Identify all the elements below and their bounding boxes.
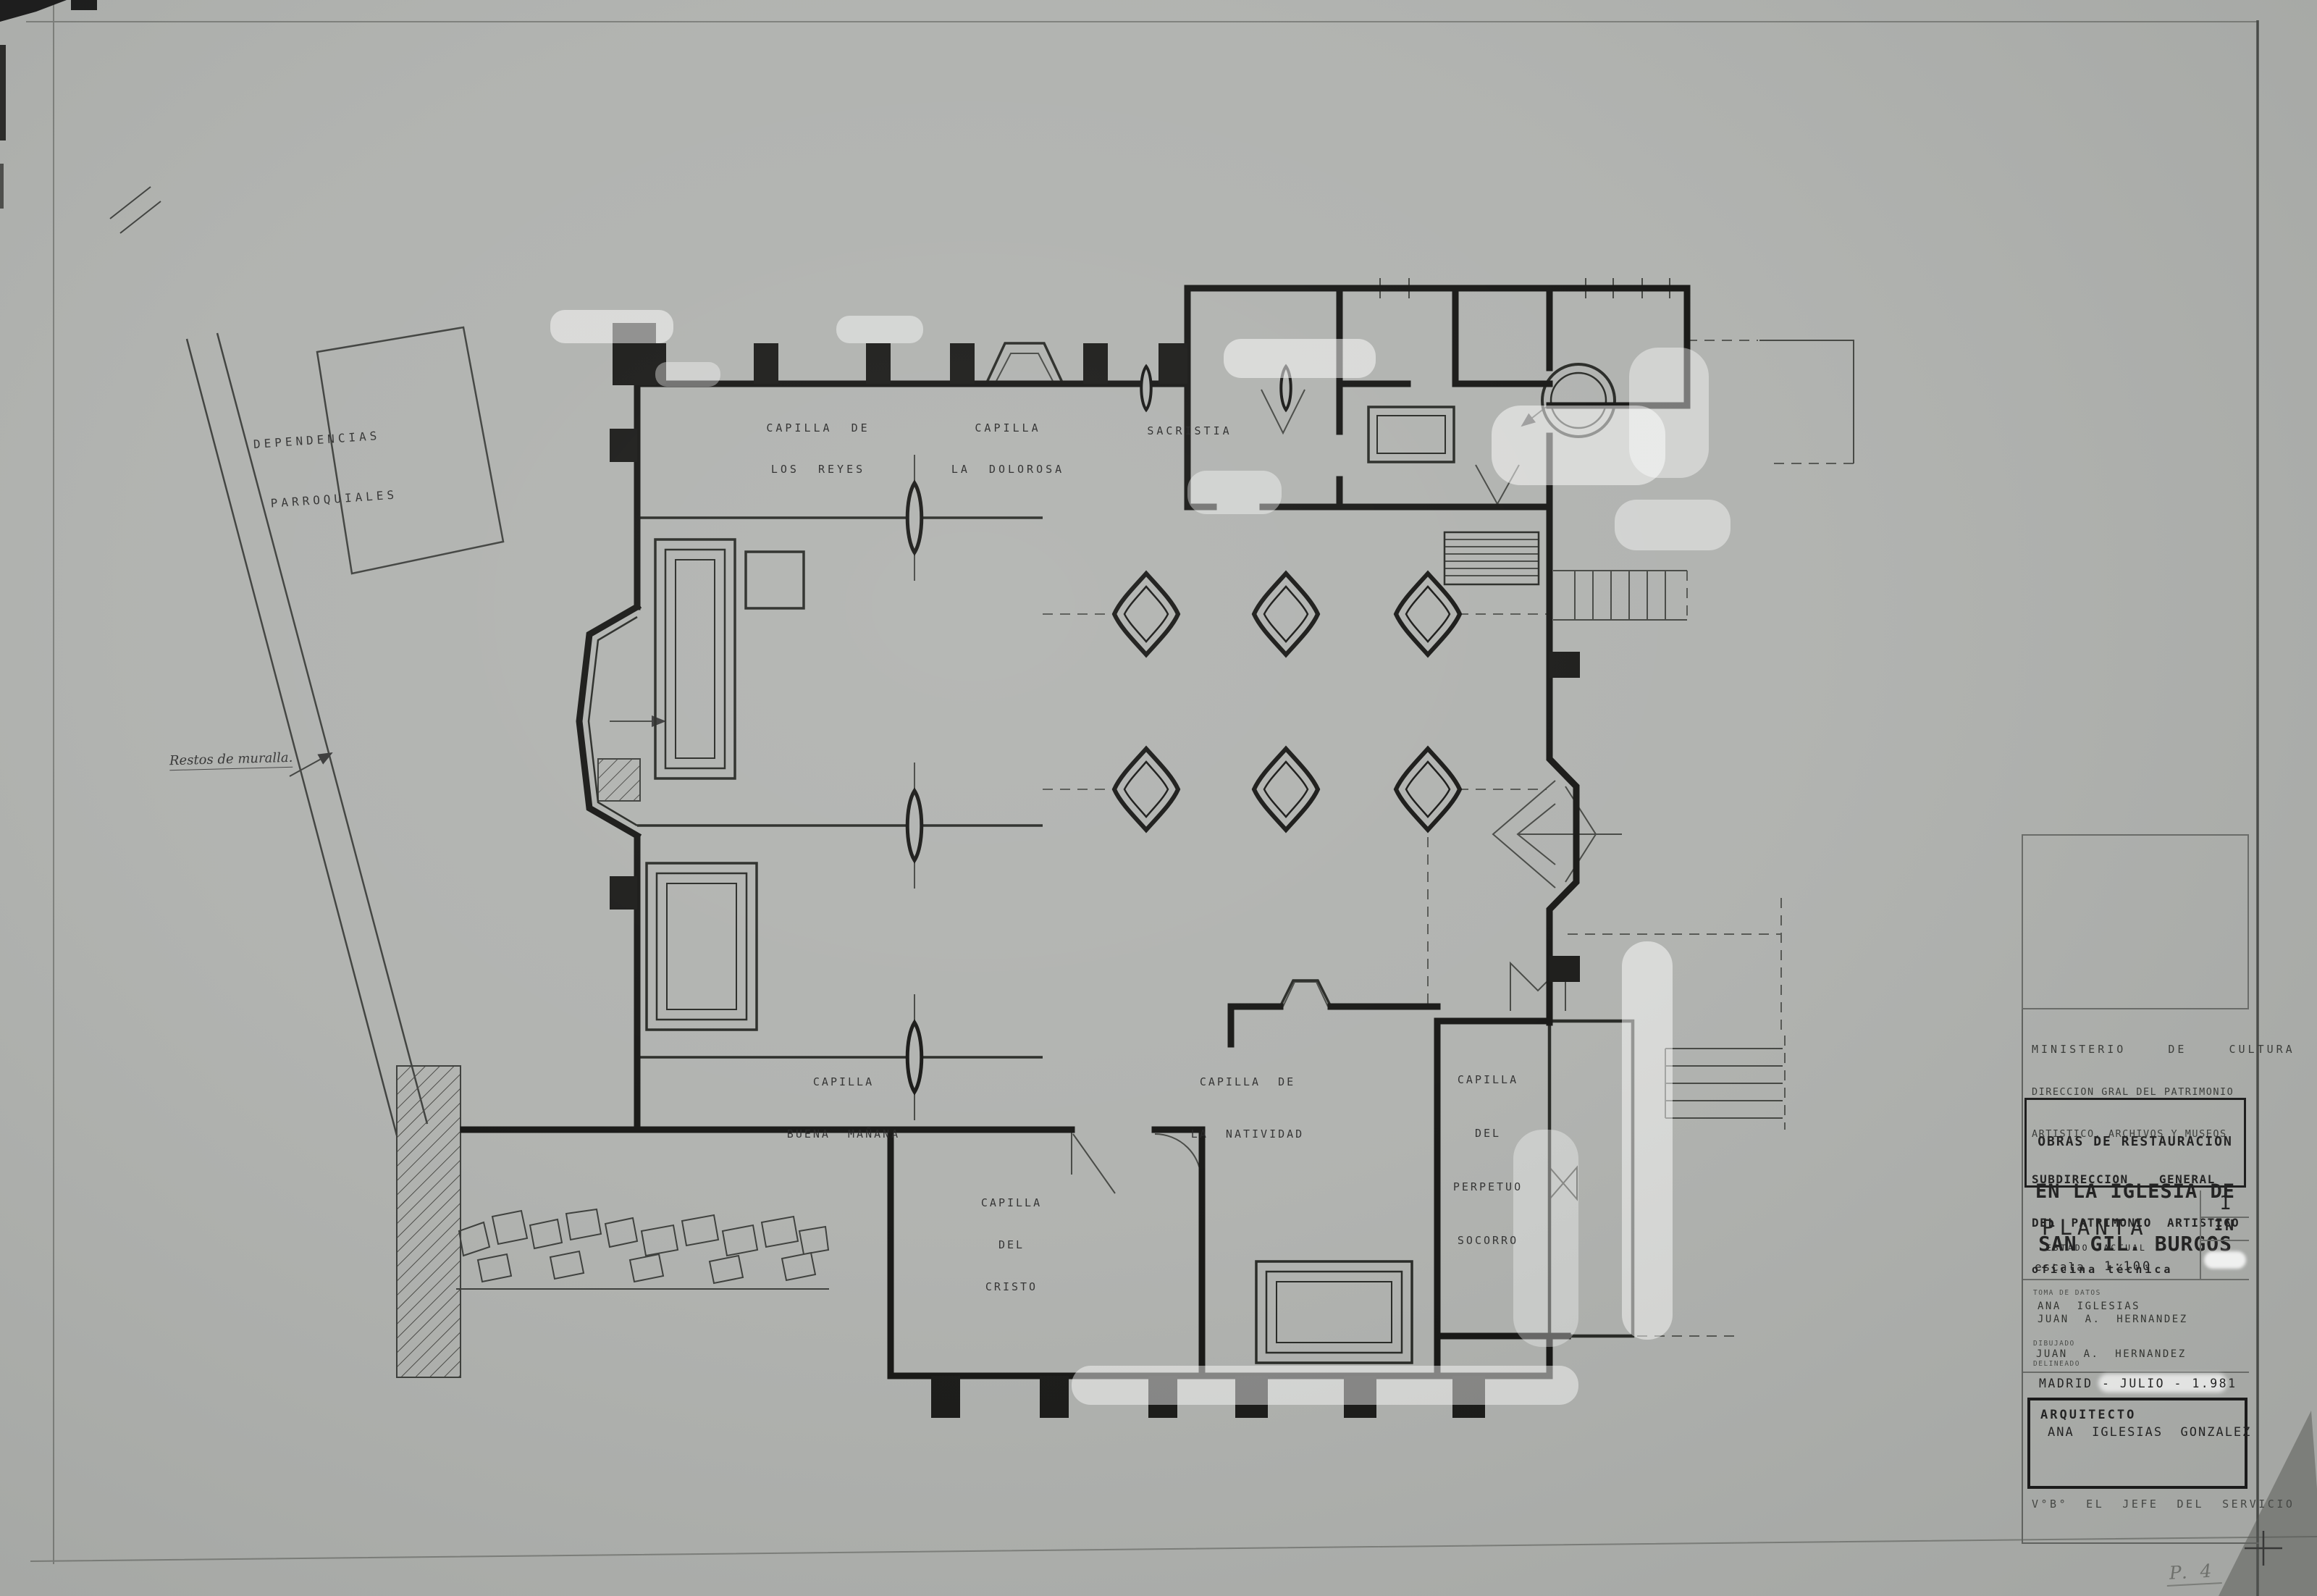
approval-section: V°B° EL JEFE DEL SERVICIO bbox=[2023, 1487, 2249, 1542]
sheet-number-cell: 1 IN bbox=[2200, 1190, 2249, 1279]
label-capilla-dolorosa: CAPILLA LA DOLOROSA bbox=[951, 395, 1064, 490]
label-line: DEPENDENCIAS bbox=[253, 426, 420, 451]
label-line: LOS REYES bbox=[766, 462, 870, 477]
label-restos-de-muralla: Restos de muralla. bbox=[169, 750, 293, 770]
label-capilla-buena-manana: CAPILLA BUENA MAÑANA bbox=[787, 1043, 900, 1160]
credits-section: TOMA DE DATOS ANA IGLESIAS JUAN A. HERNA… bbox=[2023, 1279, 2249, 1373]
sheet-number: 1 bbox=[2201, 1192, 2249, 1218]
sheet-revision-box bbox=[2201, 1241, 2249, 1279]
page-number: P. 4 bbox=[2166, 1560, 2221, 1587]
architect-label: ARQUITECTO bbox=[2040, 1408, 2136, 1422]
ministry-line: DIRECCION GRAL DEL PATRIMONIO bbox=[2032, 1086, 2249, 1098]
label-sacristia: SACRISTIA bbox=[1147, 398, 1232, 452]
credits-toma-name-2: JUAN A. HERNANDEZ bbox=[2038, 1314, 2188, 1325]
credits-delineado-label: DELINEADO bbox=[2033, 1360, 2080, 1368]
hatched-wall bbox=[397, 759, 640, 1377]
whiteout-patches bbox=[550, 310, 1731, 1405]
sheet-code: IN bbox=[2201, 1217, 2249, 1241]
label-line: LA NATIVIDAD bbox=[1191, 1121, 1304, 1147]
label-line: SACRISTIA bbox=[1147, 424, 1232, 439]
drawing-section: PLANTA ESTADO ACTUAL escala 1:100 1 IN bbox=[2023, 1190, 2249, 1280]
label-line: PARROQUIALES bbox=[270, 486, 424, 511]
drawing-title: PLANTA bbox=[2042, 1215, 2148, 1240]
date-section: MADRID - JULIO - 1.981 bbox=[2023, 1372, 2249, 1398]
label-capilla-cristo: CAPILLA DEL CRISTO bbox=[981, 1169, 1042, 1308]
label-line: BUENA MAÑANA bbox=[787, 1121, 900, 1147]
label-capilla-reyes: CAPILLA DE LOS REYES bbox=[766, 395, 870, 490]
floor-plan-drawing bbox=[0, 0, 2317, 1596]
architect-name: ANA IGLESIAS GONZALEZ bbox=[2048, 1425, 2251, 1440]
credits-toma-label: TOMA DE DATOS bbox=[2033, 1289, 2101, 1297]
label-line: DEL bbox=[981, 1237, 1042, 1253]
label-line: PERPETUO bbox=[1453, 1173, 1523, 1201]
drawing-sheet: CAPILLA DE LOS REYES CAPILLA LA DOLOROSA… bbox=[0, 0, 2317, 1596]
approval-line: V°B° EL JEFE DEL SERVICIO bbox=[2032, 1498, 2295, 1511]
credits-toma-name-1: ANA IGLESIAS bbox=[2038, 1301, 2140, 1312]
site-lines bbox=[110, 187, 503, 1135]
credits-dibujado-label: DIBUJADO bbox=[2033, 1340, 2075, 1348]
dashed-lines bbox=[1043, 340, 1854, 1336]
date-line: MADRID - JULIO - 1.981 bbox=[2039, 1377, 2237, 1390]
label-line: CAPILLA bbox=[951, 421, 1064, 436]
label-line: CRISTO bbox=[981, 1279, 1042, 1295]
title-block: MINISTERIO DE CULTURA DIRECCION GRAL DEL… bbox=[2022, 834, 2259, 1544]
label-capilla-perpetuo-socorro: CAPILLA DEL PERPETUO SOCORRO bbox=[1453, 1040, 1523, 1267]
credits-dibujado-name: JUAN A. HERNANDEZ bbox=[2036, 1348, 2187, 1360]
drawing-subtitle: ESTADO ACTUAL bbox=[2046, 1243, 2147, 1253]
title-block-empty-box bbox=[2022, 834, 2249, 1009]
label-line: CAPILLA bbox=[1453, 1066, 1523, 1093]
scale-value: 1:100 bbox=[2104, 1259, 2152, 1274]
scan-artifacts bbox=[0, 0, 97, 209]
rubble-stones bbox=[456, 1209, 829, 1289]
project-title-box: OBRAS DE RESTAURACION EN LA IGLESIA DE S… bbox=[2024, 1098, 2246, 1188]
scale-label: escala bbox=[2035, 1260, 2085, 1274]
label-line: DEL bbox=[1453, 1120, 1523, 1147]
label-line: CAPILLA DE bbox=[766, 421, 870, 436]
ministry-line: MINISTERIO DE CULTURA bbox=[2032, 1043, 2249, 1056]
label-line: CAPILLA bbox=[981, 1195, 1042, 1211]
architect-box: ARQUITECTO ANA IGLESIAS GONZALEZ bbox=[2027, 1398, 2247, 1489]
label-line: SOCORRO bbox=[1453, 1227, 1523, 1254]
label-capilla-natividad: CAPILLA DE LA NATIVIDAD bbox=[1191, 1043, 1304, 1160]
whiteout-smudge bbox=[2204, 1251, 2246, 1269]
project-line: OBRAS DE RESTAURACION bbox=[2027, 1134, 2244, 1149]
label-line: LA DOLOROSA bbox=[951, 462, 1064, 477]
label-dependencias-parroquiales: DEPENDENCIAS PARROQUIALES bbox=[251, 398, 426, 525]
label-line: CAPILLA bbox=[787, 1069, 900, 1095]
label-line: CAPILLA DE bbox=[1191, 1069, 1304, 1095]
